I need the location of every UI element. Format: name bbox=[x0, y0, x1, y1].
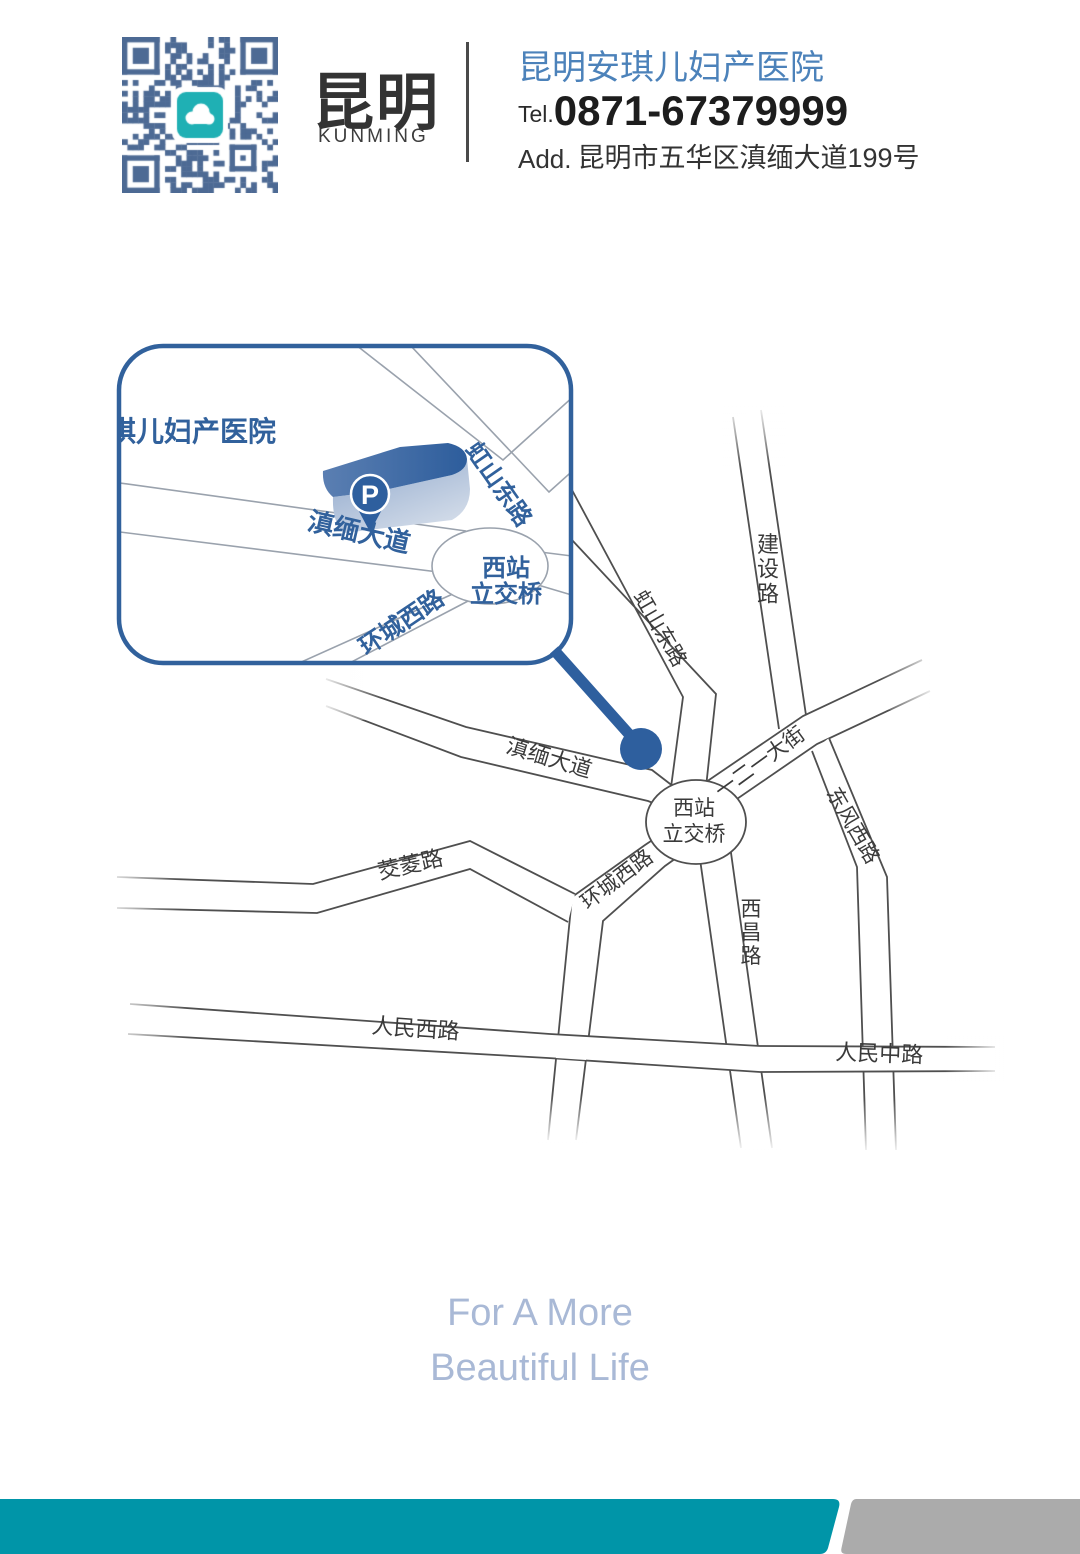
label-interchange-line2: 立交桥 bbox=[663, 823, 726, 846]
label-xichang-road: 西昌路 bbox=[741, 898, 762, 968]
label-jianshe-road: 建设路 bbox=[757, 532, 779, 606]
inset-label-interchange-line2: 立交桥 bbox=[470, 580, 543, 608]
inset-hospital-title: 昆明安琪儿妇产医院 bbox=[24, 415, 276, 447]
label-interchange-line1: 西站 bbox=[673, 797, 715, 820]
label-renmin-middle-road: 人民中路 bbox=[835, 1039, 924, 1067]
slogan-line2: Beautiful Life bbox=[0, 1341, 1080, 1396]
label-hongshan-east-road: 虹山东路 bbox=[629, 587, 691, 671]
callout-leader-line bbox=[554, 650, 636, 742]
footer-gray-bar bbox=[841, 1499, 1080, 1554]
slogan-line1: For A More bbox=[0, 1286, 1080, 1341]
inset-label-interchange-line1: 西站 bbox=[482, 555, 530, 582]
label-yiereyi-street: 一二一大街 bbox=[711, 723, 809, 803]
footer-bars bbox=[0, 1490, 1080, 1554]
slogan: For A More Beautiful Life bbox=[0, 1286, 1080, 1396]
footer-teal-bar bbox=[0, 1499, 839, 1554]
inset-callout: P 昆明安琪儿妇产医院 滇缅大道 虹山东路 西站 立交桥 环城西路 bbox=[24, 345, 578, 668]
hospital-location-marker bbox=[620, 728, 662, 770]
parking-pin-letter: P bbox=[361, 480, 379, 510]
